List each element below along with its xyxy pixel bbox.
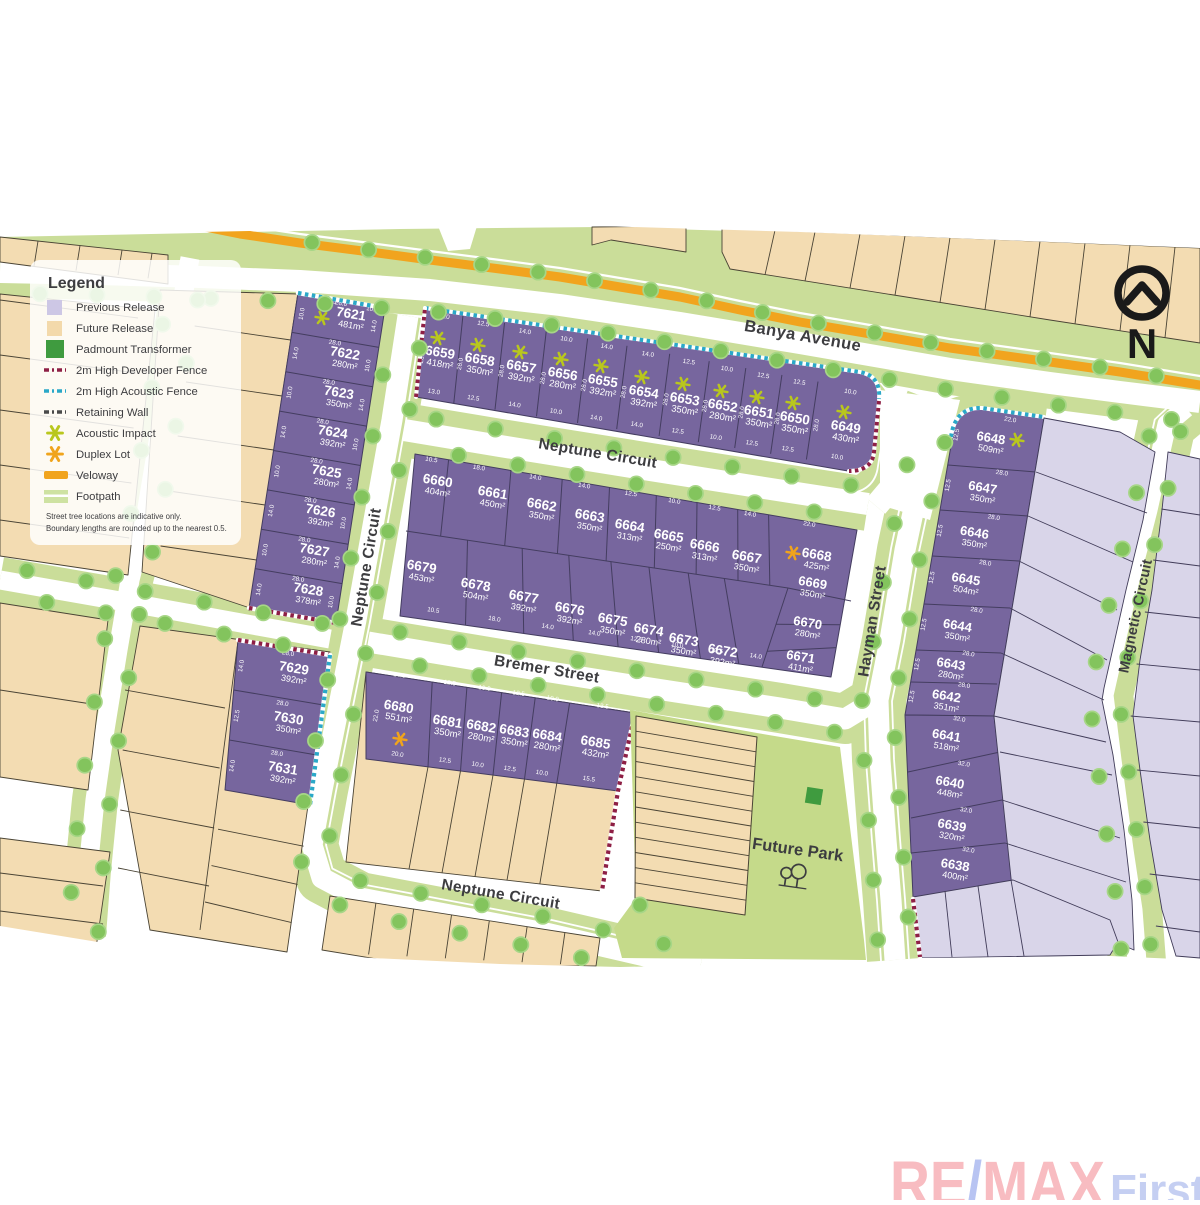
svg-text:First: First	[1110, 1166, 1200, 1200]
svg-text:Padmount Transformer: Padmount Transformer	[76, 344, 192, 356]
svg-text:Veloway: Veloway	[76, 470, 118, 482]
svg-text:Street tree locations are indi: Street tree locations are indicative onl…	[46, 512, 182, 521]
svg-text:RE/MAX: RE/MAX	[890, 1148, 1105, 1200]
svg-text:Legend: Legend	[48, 275, 105, 292]
svg-text:2m High Acoustic Fence: 2m High Acoustic Fence	[76, 386, 198, 398]
svg-text:Future Release: Future Release	[76, 323, 153, 335]
svg-text:N: N	[1127, 320, 1157, 367]
svg-text:Retaining Wall: Retaining Wall	[76, 407, 148, 419]
svg-text:Previous Release: Previous Release	[76, 302, 165, 314]
svg-text:Footpath: Footpath	[76, 491, 121, 503]
svg-text:Boundary lengths are rounded u: Boundary lengths are rounded up to the n…	[46, 524, 227, 533]
svg-text:Acoustic Impact: Acoustic Impact	[76, 428, 157, 440]
svg-text:Duplex Lot: Duplex Lot	[76, 449, 131, 461]
svg-text:2m High Developer Fence: 2m High Developer Fence	[76, 365, 207, 377]
